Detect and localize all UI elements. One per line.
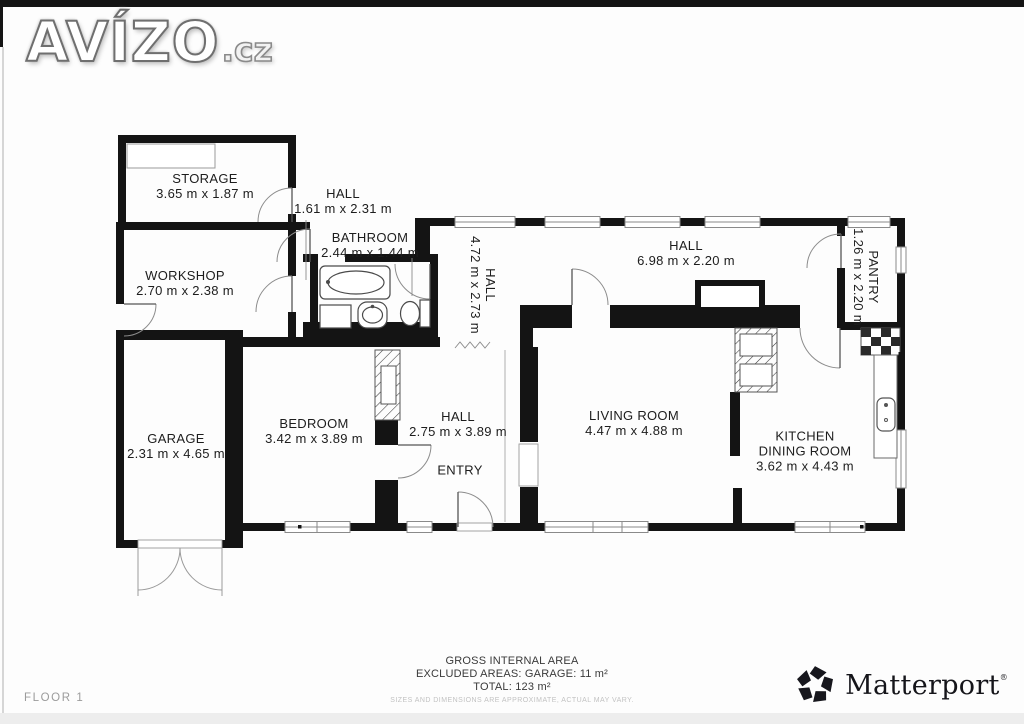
bathroom-fixtures	[320, 266, 430, 328]
matterport-icon	[794, 664, 836, 706]
shower-cabinet-icon	[320, 305, 351, 328]
toilet-bowl-icon	[401, 302, 420, 326]
floor-label: FLOOR 1	[24, 692, 84, 704]
fireplace	[698, 283, 762, 310]
page: AVÍZO.cz	[0, 0, 1024, 724]
stairs	[735, 328, 777, 392]
kitchen-fixtures	[861, 328, 900, 458]
storage-closet	[127, 144, 215, 168]
toilet-tank-icon	[420, 300, 430, 327]
floor-plan	[0, 0, 1024, 724]
matterport-wordmark: Matterport®	[845, 670, 1008, 701]
bedroom-closet	[375, 350, 400, 420]
walls	[116, 135, 905, 548]
registered-mark-icon: ®	[1000, 673, 1008, 682]
matterport-logo: Matterport®	[794, 664, 1008, 706]
kitchen-sink-icon	[877, 398, 895, 431]
bottom-strip	[0, 713, 1024, 724]
thresholds	[138, 342, 538, 548]
garage-door	[138, 548, 222, 596]
